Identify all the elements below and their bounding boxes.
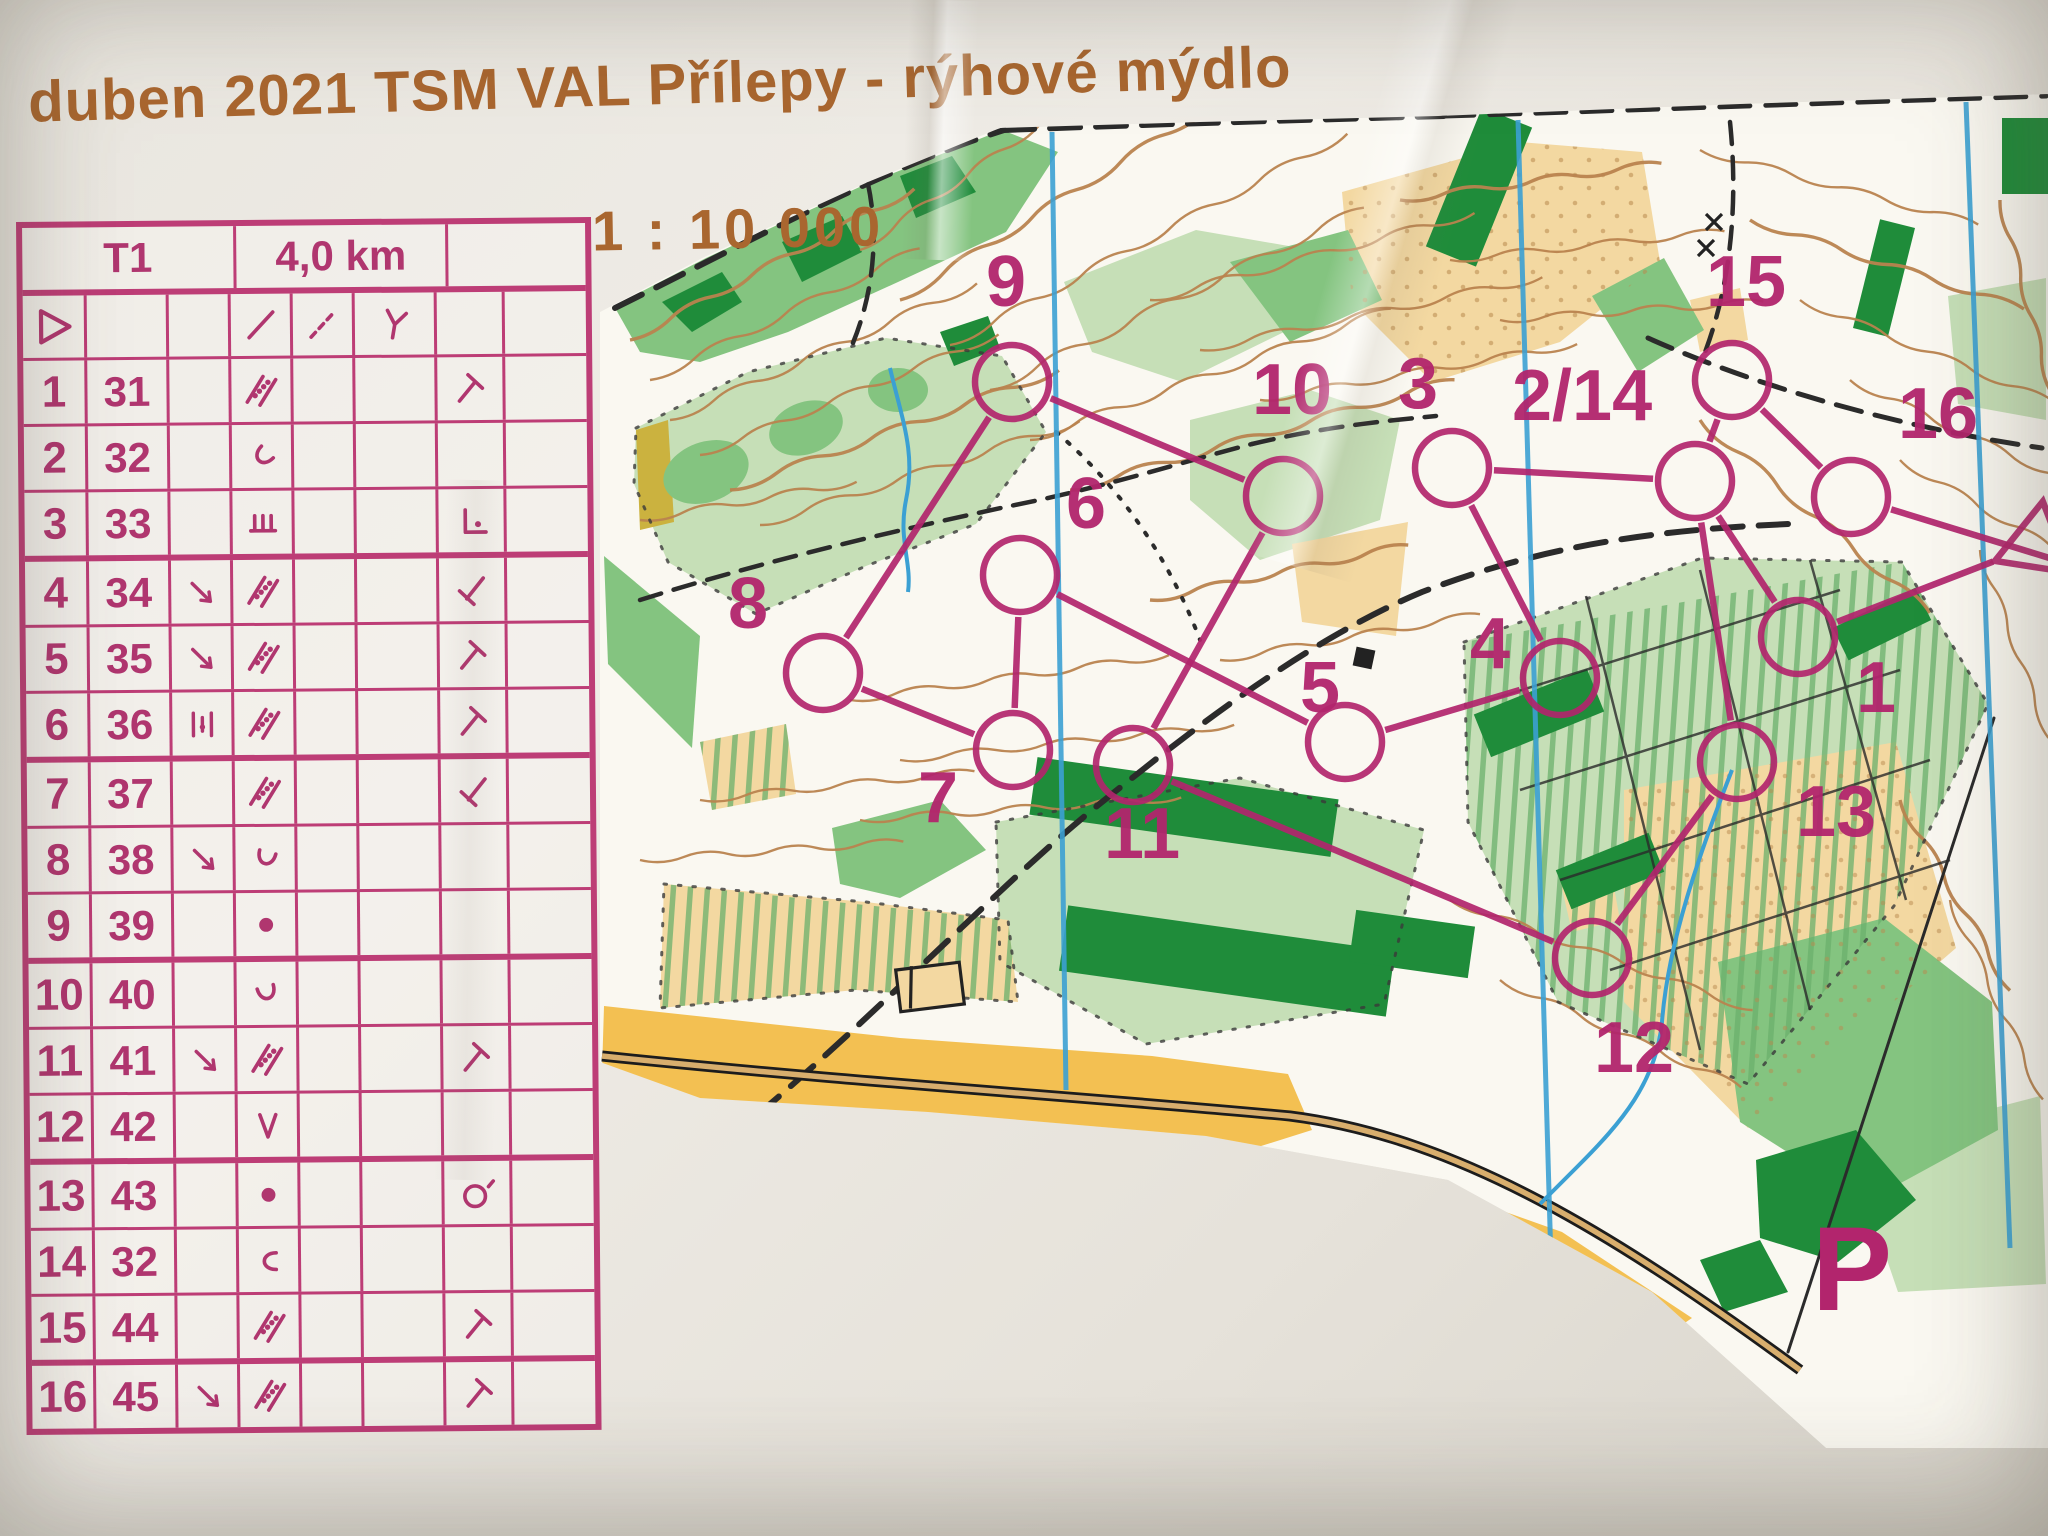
- col-h-cell: [506, 488, 567, 552]
- col-d-symbol-cell: [238, 1163, 301, 1227]
- control-number-cell: 5: [26, 627, 91, 691]
- col-c-symbol-cell: [178, 1364, 241, 1428]
- col-e-cell: [298, 961, 361, 1025]
- control-code-cell: 33: [88, 492, 171, 556]
- col-c-symbol-cell: [170, 491, 233, 555]
- control-number-cell: 11: [29, 1029, 94, 1093]
- control-code: 40: [109, 970, 156, 1018]
- col-c-symbol-cell: [171, 560, 234, 624]
- col-c-symbol-cell: [175, 1028, 238, 1092]
- control-code-cell: 34: [89, 561, 172, 625]
- control-row-4: 434: [25, 557, 589, 628]
- col-h-cell: [512, 1160, 573, 1224]
- control-label-3: 3: [1398, 344, 1438, 424]
- col-f-cell: [359, 759, 442, 823]
- control-code: 32: [104, 433, 151, 481]
- control-label-10: 10: [1252, 350, 1332, 430]
- col-d-symbol-cell: [236, 893, 299, 957]
- col-e-cell: [301, 1294, 364, 1358]
- control-code-cell: 39: [92, 894, 175, 958]
- col-c-symbol-cell: [177, 1295, 240, 1359]
- col-f-cell: [363, 1227, 446, 1291]
- card-header-row: T14,0 km: [22, 223, 586, 296]
- col-h-cell: [512, 1091, 573, 1155]
- control-row-13: 1343: [30, 1160, 594, 1231]
- col-e-cell: [302, 1363, 365, 1427]
- col-f-cell: [358, 624, 441, 688]
- control-row-7: 737: [27, 758, 591, 829]
- col-c-symbol-cell: [177, 1229, 240, 1293]
- col-e-cell: [300, 1093, 363, 1157]
- col-e-cell: [297, 760, 360, 824]
- control-number-cell: 15: [31, 1296, 96, 1360]
- col-e-cell: [296, 691, 359, 755]
- col-f-cell: [362, 1161, 445, 1225]
- col-h-cell: [509, 824, 570, 888]
- course-length-cell: 4,0 km: [236, 224, 449, 288]
- control-number-cell: 7: [27, 762, 92, 826]
- col-e-cell: [294, 424, 357, 488]
- col-c-symbol-cell: [173, 761, 236, 825]
- col-d-symbol-cell: [236, 962, 299, 1026]
- control-label-12: 12: [1594, 1008, 1674, 1088]
- col-h-cell: [509, 758, 570, 822]
- control-number-cell: 12: [30, 1095, 95, 1159]
- col-d-symbol-cell: [235, 827, 298, 891]
- course-leg: [1015, 617, 1019, 708]
- control-code: 31: [103, 367, 150, 415]
- col-d-symbol-cell: [235, 761, 298, 825]
- control-row-8: 838: [27, 824, 591, 895]
- control-number: 7: [45, 769, 70, 819]
- col-c-symbol-cell: [173, 827, 236, 891]
- cell-b: [87, 295, 170, 358]
- control-label-5: 5: [1300, 648, 1340, 728]
- course-name: T1: [103, 234, 152, 282]
- control-code: 41: [109, 1036, 156, 1084]
- control-label-4: 4: [1470, 604, 1510, 684]
- control-label-2/14: 2/14: [1512, 356, 1652, 436]
- control-row-6: 636: [26, 689, 590, 763]
- col-h-cell: [510, 959, 571, 1023]
- control-number-cell: 1: [23, 360, 88, 424]
- control-row-5: 535: [26, 623, 590, 694]
- control-code-cell: 40: [92, 963, 175, 1027]
- col-h-cell: [508, 689, 569, 753]
- control-row-2: 232: [24, 422, 588, 493]
- control-number-cell: 14: [31, 1230, 96, 1294]
- control-code-cell: 44: [95, 1296, 178, 1360]
- col-e-cell: [293, 358, 356, 422]
- col-c-symbol-cell: [169, 359, 232, 423]
- control-code: 38: [107, 835, 154, 883]
- col-d-symbol-cell: [238, 1094, 301, 1158]
- control-number: 3: [43, 499, 68, 549]
- scale-label: 1 : 10 000: [591, 193, 884, 263]
- control-row-15: 1544: [31, 1292, 595, 1366]
- control-row-1: 131: [23, 356, 587, 427]
- control-code: 33: [105, 499, 152, 547]
- cell-g: [437, 292, 506, 355]
- col-h-cell: [510, 890, 571, 954]
- col-f-cell: [361, 1026, 444, 1090]
- control-code-cell: 32: [95, 1230, 178, 1294]
- col-f-cell: [362, 1092, 445, 1156]
- start-feature-symbol: [231, 294, 294, 357]
- col-g-symbol-cell: [437, 357, 506, 421]
- control-number-cell: 3: [24, 492, 89, 556]
- control-code-cell: 35: [90, 627, 173, 691]
- control-code: 37: [107, 769, 154, 817]
- cell-c: [169, 294, 232, 357]
- col-c-symbol-cell: [174, 893, 237, 957]
- control-code: 44: [112, 1303, 159, 1351]
- control-row-3: 333: [24, 488, 588, 562]
- start-feature-symbol: [293, 293, 356, 356]
- control-code-cell: 45: [96, 1365, 179, 1429]
- col-g-symbol-cell: [445, 1227, 514, 1291]
- col-h-cell: [513, 1292, 574, 1356]
- control-row-10: 1040: [28, 959, 592, 1030]
- control-code: 32: [111, 1237, 158, 1285]
- col-f-cell: [360, 891, 443, 955]
- col-g-symbol-cell: [441, 759, 510, 823]
- control-description-sheet: T14,0 km13123233343453563673783893910401…: [16, 217, 602, 1435]
- col-f-cell: [356, 423, 439, 487]
- control-label-7: 7: [918, 758, 958, 838]
- start-symbol: [23, 295, 88, 358]
- control-code-cell: 38: [91, 828, 174, 892]
- col-d-symbol-cell: [239, 1229, 302, 1293]
- col-g-symbol-cell: [440, 690, 509, 754]
- control-number: 5: [44, 634, 69, 684]
- col-g-symbol-cell: [444, 1161, 513, 1225]
- col-f-cell: [360, 960, 443, 1024]
- col-c-symbol-cell: [170, 425, 233, 489]
- col-h-cell: [514, 1361, 575, 1425]
- course-length: 4,0 km: [275, 232, 406, 281]
- col-g-symbol-cell: [438, 423, 507, 487]
- control-number-cell: 4: [25, 561, 90, 625]
- col-e-cell: [298, 892, 361, 956]
- col-e-cell: [296, 625, 359, 689]
- orienteering-map-photo: 12/143456789101112131516P duben 2021 TSM…: [0, 0, 2048, 1536]
- control-code-cell: 41: [93, 1029, 176, 1093]
- control-number: 1: [42, 367, 67, 417]
- col-g-symbol-cell: [446, 1362, 515, 1426]
- control-number: 9: [46, 901, 71, 951]
- control-row-16: 1645: [32, 1361, 596, 1429]
- col-h-cell: [511, 1025, 572, 1089]
- col-e-cell: [300, 1162, 363, 1226]
- control-code-cell: 42: [94, 1095, 177, 1159]
- col-h-cell: [507, 557, 568, 621]
- col-g-symbol-cell: [444, 1092, 513, 1156]
- control-number-cell: 8: [27, 828, 92, 892]
- control-number: 14: [37, 1237, 86, 1287]
- col-f-cell: [356, 489, 439, 553]
- control-number-cell: 13: [30, 1164, 95, 1228]
- col-h-cell: [513, 1226, 574, 1290]
- col-g-symbol-cell: [442, 891, 511, 955]
- col-e-cell: [301, 1228, 364, 1292]
- control-label-11: 11: [1104, 794, 1180, 874]
- cell-h: [505, 291, 566, 354]
- col-e-cell: [297, 826, 360, 890]
- col-c-symbol-cell: [176, 1163, 239, 1227]
- col-f-cell: [355, 357, 438, 421]
- col-c-symbol-cell: [174, 962, 237, 1026]
- control-label-8: 8: [728, 564, 768, 644]
- col-g-symbol-cell: [443, 1026, 512, 1090]
- col-f-cell: [359, 825, 442, 889]
- control-row-14: 1432: [31, 1226, 595, 1297]
- control-code: 43: [110, 1171, 157, 1219]
- col-h-cell: [506, 422, 567, 486]
- control-number-cell: 9: [28, 894, 93, 958]
- control-row-11: 1141: [29, 1025, 593, 1096]
- control-number: 10: [35, 970, 84, 1020]
- control-code-cell: 32: [88, 426, 171, 490]
- control-number-cell: 2: [24, 426, 89, 490]
- control-number: 4: [43, 568, 68, 618]
- control-code-cell: 36: [90, 693, 173, 757]
- col-f-cell: [358, 690, 441, 754]
- control-number-cell: 10: [28, 963, 93, 1027]
- col-g-symbol-cell: [445, 1293, 514, 1357]
- col-g-symbol-cell: [440, 624, 509, 688]
- col-e-cell: [295, 559, 358, 623]
- course-climb-cell: [448, 223, 580, 286]
- control-number: 2: [42, 433, 67, 483]
- course-name-cell: T1: [22, 226, 237, 290]
- control-code: 42: [110, 1102, 157, 1150]
- control-number: 16: [38, 1372, 87, 1422]
- start-feature-symbol: [355, 292, 438, 355]
- control-label-13: 13: [1796, 772, 1876, 852]
- col-c-symbol-cell: [176, 1094, 239, 1158]
- control-number: 8: [46, 835, 71, 885]
- control-code: 35: [106, 634, 153, 682]
- control-code-cell: 37: [91, 762, 174, 826]
- col-d-symbol-cell: [234, 626, 297, 690]
- control-number: 12: [36, 1102, 85, 1152]
- control-code: 36: [106, 700, 153, 748]
- col-f-cell: [364, 1362, 447, 1426]
- col-g-symbol-cell: [442, 960, 511, 1024]
- control-row-12: 1242: [30, 1091, 594, 1165]
- control-code-cell: 43: [94, 1164, 177, 1228]
- col-g-symbol-cell: [441, 825, 510, 889]
- col-d-symbol-cell: [233, 560, 296, 624]
- col-d-symbol-cell: [232, 491, 295, 555]
- start-row: [23, 291, 587, 361]
- col-g-symbol-cell: [438, 489, 507, 553]
- control-label-6: 6: [1066, 464, 1106, 544]
- col-c-symbol-cell: [172, 692, 235, 756]
- col-h-cell: [508, 623, 569, 687]
- col-h-cell: [505, 356, 566, 420]
- control-label-1: 1: [1856, 648, 1896, 728]
- control-number: 13: [36, 1171, 85, 1221]
- col-f-cell: [363, 1293, 446, 1357]
- col-d-symbol-cell: [232, 425, 295, 489]
- col-f-cell: [357, 558, 440, 622]
- control-number-cell: 6: [26, 693, 91, 757]
- control-row-9: 939: [28, 890, 592, 964]
- col-e-cell: [294, 490, 357, 554]
- control-number: 11: [36, 1036, 83, 1086]
- col-d-symbol-cell: [239, 1295, 302, 1359]
- parking-label: P: [1812, 1202, 1892, 1336]
- control-code-cell: 31: [87, 360, 170, 424]
- col-d-symbol-cell: [234, 692, 297, 756]
- col-d-symbol-cell: [237, 1028, 300, 1092]
- col-d-symbol-cell: [231, 359, 294, 423]
- col-c-symbol-cell: [172, 626, 235, 690]
- control-code: 45: [112, 1372, 159, 1420]
- control-number: 6: [44, 700, 69, 750]
- col-d-symbol-cell: [240, 1364, 303, 1428]
- control-label-9: 9: [986, 242, 1026, 322]
- control-label-16: 16: [1898, 374, 1978, 454]
- col-g-symbol-cell: [439, 558, 508, 622]
- control-code: 39: [108, 901, 155, 949]
- control-code: 34: [105, 568, 152, 616]
- control-label-15: 15: [1706, 242, 1786, 322]
- control-number-cell: 16: [32, 1365, 97, 1429]
- control-number: 15: [37, 1303, 86, 1353]
- col-e-cell: [299, 1027, 362, 1091]
